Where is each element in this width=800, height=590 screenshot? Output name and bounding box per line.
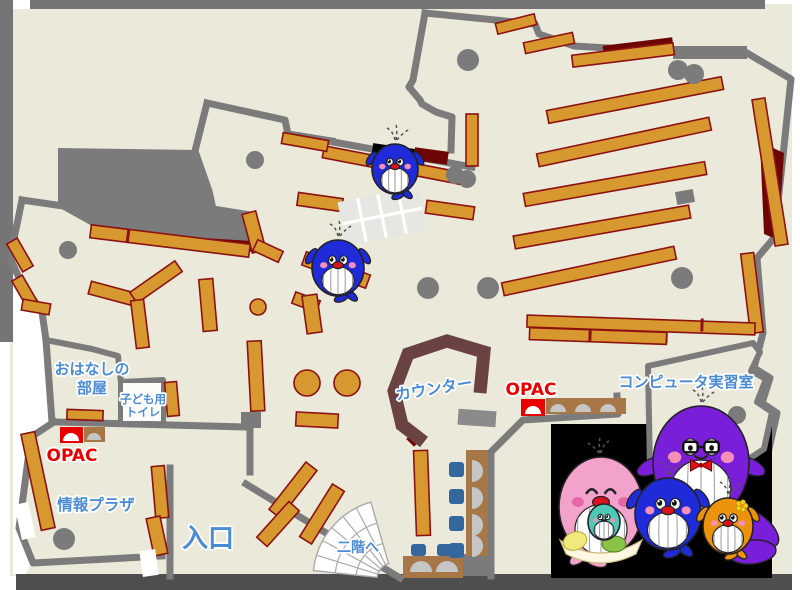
label-kids-toilet: 子ども用 bbox=[120, 392, 166, 406]
bookshelf bbox=[165, 382, 180, 417]
bookshelf bbox=[67, 409, 103, 420]
bookshelf bbox=[466, 114, 478, 166]
label-opac-center: OPAC bbox=[506, 380, 557, 400]
pillar bbox=[458, 170, 476, 188]
round-table bbox=[334, 370, 360, 396]
label-storytime-room-2: 部屋 bbox=[77, 379, 107, 397]
pillar bbox=[684, 64, 704, 84]
chair bbox=[411, 544, 426, 556]
wall bbox=[54, 422, 247, 427]
wall-block bbox=[462, 554, 493, 576]
bookshelf bbox=[700, 318, 703, 331]
frame-corner-notch bbox=[13, 0, 30, 9]
library-floor-map: おはなしの 部屋 子ども用 トイレ OPAC 情報プラザ 入口 二階へ カウンタ… bbox=[0, 0, 800, 590]
baby-whale bbox=[588, 504, 620, 540]
wall-block bbox=[241, 412, 261, 428]
label-to-second-floor: 二階へ bbox=[337, 539, 379, 556]
label-computer-room: コンピュータ実習室 bbox=[618, 373, 753, 391]
frame-left-bar bbox=[0, 0, 13, 342]
pillar bbox=[457, 49, 479, 71]
frame-top-bar bbox=[28, 0, 765, 9]
bookshelf bbox=[247, 341, 265, 412]
pillar bbox=[246, 151, 264, 169]
counter-desk bbox=[457, 409, 496, 428]
pillar bbox=[671, 267, 693, 289]
label-info-plaza: 情報プラザ bbox=[57, 495, 135, 514]
bookshelf bbox=[588, 329, 591, 342]
pillar bbox=[59, 241, 77, 259]
label-entrance: 入口 bbox=[182, 524, 234, 554]
label-storytime-room: おはなしの bbox=[54, 360, 129, 378]
round-table bbox=[250, 299, 266, 315]
chair bbox=[449, 462, 464, 477]
round-table bbox=[294, 370, 320, 396]
chair bbox=[449, 489, 464, 504]
pillar bbox=[53, 528, 75, 550]
chair bbox=[437, 544, 452, 556]
chair bbox=[449, 516, 464, 531]
bookshelf bbox=[414, 450, 431, 535]
opac-terminal-left bbox=[60, 427, 105, 443]
label-kids-toilet-2: トイレ bbox=[126, 405, 161, 419]
library-floor-map-page: おはなしの 部屋 子ども用 トイレ OPAC 情報プラザ 入口 二階へ カウンタ… bbox=[0, 0, 800, 590]
pillar bbox=[417, 277, 439, 299]
pillar bbox=[477, 277, 499, 299]
opac-terminal-center bbox=[521, 398, 626, 416]
label-opac-left: OPAC bbox=[47, 446, 98, 466]
bookshelf bbox=[296, 412, 339, 428]
wall-block bbox=[673, 46, 747, 59]
